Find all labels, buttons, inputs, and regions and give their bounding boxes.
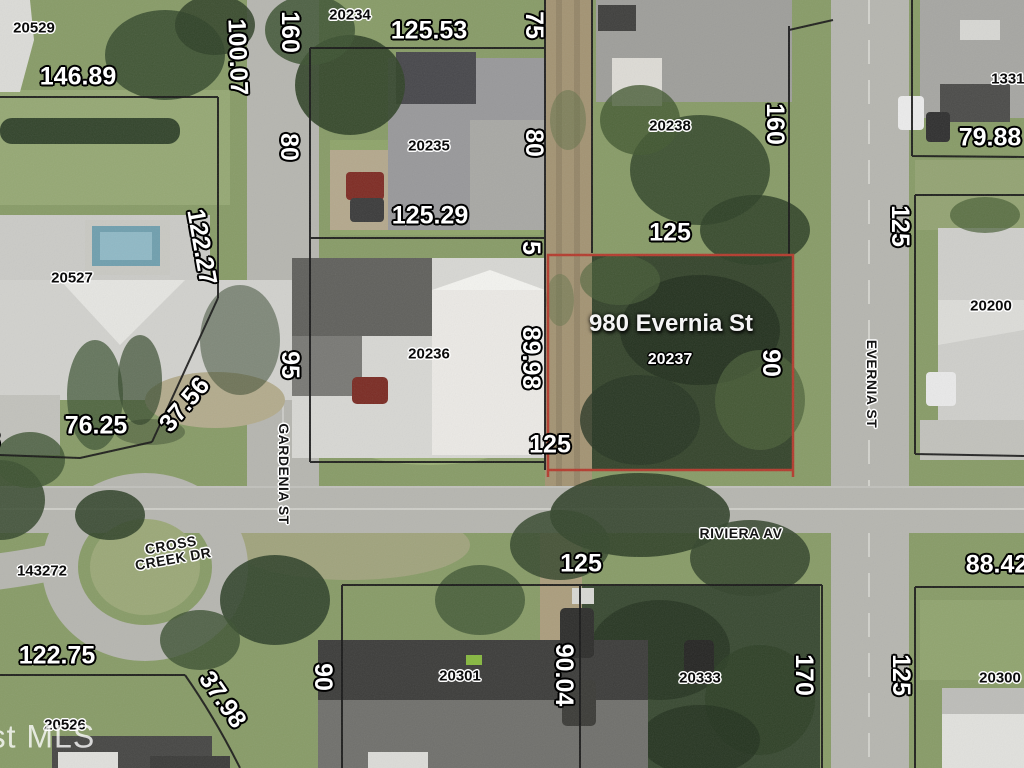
dim-20526-north: 122.75 — [19, 643, 95, 669]
street-riviera: RIVIERA AV — [699, 526, 782, 540]
parcel-id-20200: 20200 — [970, 298, 1012, 313]
dim-20235-west: 80 — [275, 133, 301, 161]
dim-20527-east: 122.27 — [182, 207, 220, 287]
parcel-id-13312: 13312 — [991, 71, 1024, 86]
dim-20234-east: 75 — [520, 11, 546, 39]
dim-20234-west: 160 — [276, 11, 302, 53]
parcel-id-20527: 20527 — [51, 270, 93, 285]
parcel-id-20300: 20300 — [979, 670, 1021, 685]
dim-20237-north: 125 — [649, 220, 691, 246]
parcel-id-20526: 20526 — [44, 717, 86, 732]
dim-20236-east: 89.98 — [517, 327, 543, 390]
street-evernia: EVERNIA ST — [865, 340, 879, 429]
dim-20300-west: 125 — [887, 654, 913, 696]
dim-20527-southeast: 37.56 — [155, 373, 215, 437]
dim-20236-west: 95 — [276, 351, 302, 379]
dim-gardenia-north: 100.07 — [223, 18, 251, 95]
dim-20526-east: 37.98 — [194, 667, 251, 733]
dim-20237-south: 125 — [529, 432, 571, 458]
dim-20527-south: 76.25 — [65, 413, 128, 439]
dim-20235-east: 80 — [520, 129, 546, 157]
dim-20301-west: 90 — [309, 663, 335, 691]
labels-layer: 146.89100.07160125.53758080125.295122.27… — [0, 0, 1024, 768]
parcel-id-20235: 20235 — [408, 138, 450, 153]
parcel-id-20301: 20301 — [439, 668, 481, 683]
street-cross-creek: CROSS CREEK DR — [132, 531, 213, 572]
dim-79-88: 79.88 — [959, 125, 1022, 151]
dim-20234-north: 125.53 — [391, 18, 467, 44]
dim-20301-north: 125 — [560, 551, 602, 577]
dim-20301-east: 90.04 — [550, 644, 576, 707]
dim-20235-south: 125.29 — [392, 203, 468, 229]
dim-20333-east: 170 — [790, 654, 816, 696]
parcel-id-20529: 20529 — [13, 20, 55, 35]
parcel-id-20234: 20234 — [329, 7, 371, 22]
dim-20529-south: 146.89 — [40, 64, 116, 90]
dim-alley: 5 — [517, 241, 543, 255]
dim-20238-east: 160 — [761, 103, 787, 145]
dim-20300-north: 88.42 — [966, 552, 1024, 578]
dim-20237-east: 90 — [757, 349, 783, 377]
parcel-id-20333: 20333 — [679, 670, 721, 685]
dim-20200-west: 125 — [886, 205, 912, 247]
parcel-id-143272: 143272 — [17, 563, 67, 578]
street-gardenia: GARDENIA ST — [277, 423, 291, 524]
parcel-id-20236: 20236 — [408, 346, 450, 361]
plat-map: 146.89100.07160125.53758080125.295122.27… — [0, 0, 1024, 768]
parcel-id-20238: 20238 — [649, 118, 691, 133]
